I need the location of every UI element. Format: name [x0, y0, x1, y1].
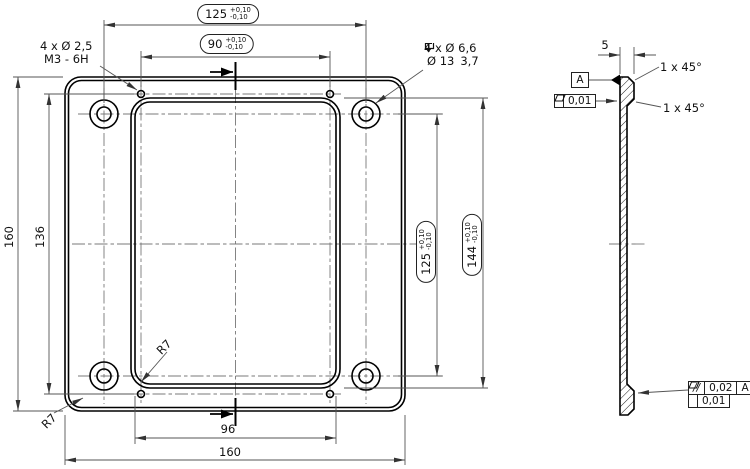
parallelism-flatness-frame: // 0,02 A 0,01	[688, 381, 750, 408]
datum-triangle-icon	[611, 75, 620, 86]
dim-thickness-label: 5	[601, 38, 608, 52]
centerlines	[72, 85, 645, 404]
side-view-section	[620, 77, 634, 415]
dim-160-left-label: 160	[2, 226, 16, 248]
dim-125-right-label: 125 +0,10-0,10	[416, 221, 436, 283]
leader-tapped-holes	[100, 66, 137, 90]
technical-drawing-page: 125 +0,10-0,10 90 +0,10-0,10 160 136 125…	[0, 0, 750, 469]
extension-lines	[13, 20, 634, 465]
dim-144-label: 144 +0,10-0,10	[462, 214, 482, 276]
dim-96-label: 96	[221, 422, 236, 436]
flatness-frame: 0,01	[554, 94, 596, 108]
dim-125-top-label: 125 +0,10-0,10	[197, 4, 259, 24]
leader-chamfer-bottom	[636, 102, 661, 107]
chamfer-top-label: 1 x 45°	[660, 61, 702, 74]
callout-counterbore: 4 x Ø 6,6 Ø 13 3,7	[424, 42, 479, 68]
dimension-lines	[18, 25, 483, 460]
dim-90-label: 90 +0,10-0,10	[200, 34, 254, 54]
dim-160-bottom-label: 160	[219, 445, 241, 459]
dim-136-label: 136	[33, 226, 47, 248]
chamfer-bottom-label: 1 x 45°	[663, 102, 705, 115]
callout-tapped-holes: 4 x Ø 2,5 M3 - 6H	[40, 40, 92, 66]
leader-fcf	[638, 390, 688, 393]
leader-chamfer-top	[635, 67, 659, 80]
drawing-canvas	[0, 0, 750, 469]
datum-box: A	[571, 72, 589, 88]
